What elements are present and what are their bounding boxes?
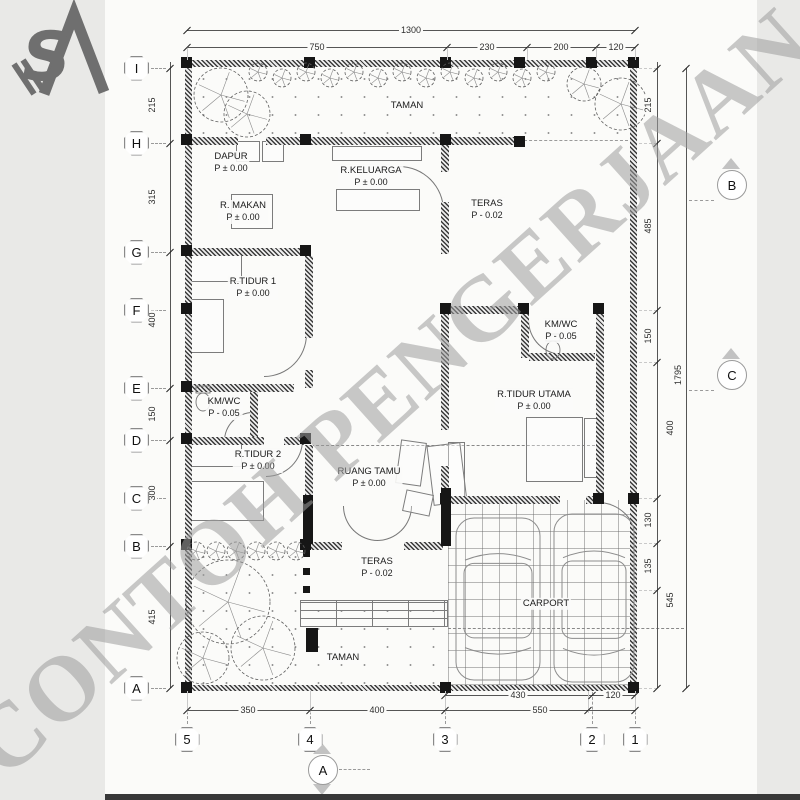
- column-block: [304, 57, 315, 68]
- dim-label: 400: [367, 705, 386, 715]
- door-swing-arc: [343, 506, 378, 541]
- bed: [189, 481, 264, 521]
- column-block: [181, 134, 192, 145]
- wall-segment: [192, 137, 238, 145]
- dashed-line: [151, 252, 166, 253]
- wall-segment: [448, 496, 560, 504]
- dim-label: 230: [477, 42, 496, 52]
- dim-label: 120: [606, 42, 625, 52]
- dashed-line: [151, 440, 166, 441]
- sa-monogram-logo: S: [10, 4, 110, 101]
- grid-bubble-row-F: F: [124, 298, 149, 323]
- section-marker-A: A: [308, 755, 338, 785]
- room-name: R.TIDUR 1: [230, 276, 276, 288]
- bed: [189, 299, 224, 353]
- room-name: KM/WC: [208, 396, 241, 408]
- dim-label: 150: [147, 404, 157, 423]
- dashed-line: [339, 769, 370, 770]
- room-level: P ± 0.00: [235, 461, 281, 473]
- column-block: [628, 57, 639, 68]
- column-block: [628, 493, 639, 504]
- dim-label: 150: [643, 326, 653, 345]
- room-level: P - 0.05: [208, 408, 241, 420]
- room-level: P ± 0.00: [338, 478, 401, 490]
- room-level: P - 0.02: [361, 568, 393, 580]
- sofa-table: [336, 189, 420, 211]
- wall-segment: [192, 437, 264, 445]
- room-label-km-wc: KM/WCP - 0.05: [206, 396, 243, 420]
- dashed-line: [151, 688, 166, 689]
- wall-segment: [448, 137, 522, 145]
- dim-label: 130: [643, 510, 653, 529]
- dim-label: 750: [307, 42, 326, 52]
- room-label-r-tidur-1: R.TIDUR 1P ± 0.00: [228, 276, 278, 300]
- column-block: [181, 245, 192, 256]
- dim-label: 315: [147, 187, 157, 206]
- wall-segment: [305, 370, 313, 388]
- room-label-r-keluarga: R.KELUARGAP ± 0.00: [338, 165, 403, 189]
- grid-bubble-col-4: 4: [298, 727, 323, 752]
- dashed-line: [448, 628, 684, 629]
- column-block: [514, 57, 525, 68]
- dim-label: 215: [643, 95, 653, 114]
- dashed-line: [151, 143, 166, 144]
- grid-bubble-row-I: I: [124, 56, 149, 81]
- ext-line: [187, 47, 188, 60]
- room-name: DAPUR: [214, 151, 247, 163]
- column-block: [303, 568, 310, 575]
- room-name: CARPORT: [523, 598, 569, 610]
- room-name: KM/WC: [545, 319, 578, 331]
- column-block: [518, 303, 529, 314]
- column-block: [181, 381, 192, 392]
- room-level: P ± 0.00: [340, 177, 401, 189]
- section-marker-B: B: [717, 170, 747, 200]
- dim-label: 1300: [399, 25, 423, 35]
- dashed-line: [151, 546, 166, 547]
- dashed-line: [592, 692, 593, 724]
- wall-segment: [441, 202, 449, 254]
- dashed-line: [151, 68, 166, 69]
- wall-segment: [185, 685, 637, 691]
- room-level: P ± 0.00: [214, 163, 247, 175]
- grid-bubble-col-1: 1: [623, 727, 648, 752]
- wall-segment: [192, 384, 294, 392]
- ext-line: [527, 47, 528, 60]
- cabinet: [332, 146, 422, 161]
- section-marker-C: C: [717, 360, 747, 390]
- room-name: TAMAN: [327, 652, 360, 664]
- wall-segment: [441, 314, 449, 430]
- wall-segment: [305, 445, 313, 495]
- room-name: TERAS: [361, 556, 393, 568]
- dashed-line: [689, 200, 714, 201]
- room-label-ruang-tamu: RUANG TAMUP ± 0.00: [336, 466, 403, 490]
- column-block: [306, 628, 318, 652]
- dim-label: 200: [551, 42, 570, 52]
- room-label-r-tidur-utama: R.TIDUR UTAMAP ± 0.00: [495, 389, 573, 413]
- dim-label: 545: [665, 590, 675, 609]
- ext-line: [635, 47, 636, 60]
- room-label-taman: TAMAN: [325, 652, 362, 664]
- room-name: R. MAKAN: [220, 200, 266, 212]
- room-label-teras: TERASP - 0.02: [359, 556, 395, 580]
- column-block: [440, 493, 451, 504]
- wall-segment: [596, 314, 604, 500]
- ext-line: [447, 47, 448, 60]
- column-block: [303, 586, 310, 593]
- column-block: [300, 245, 311, 256]
- room-label-dapur: DAPURP ± 0.00: [212, 151, 249, 175]
- grid-bubble-row-C: C: [124, 486, 149, 511]
- dim-label: 350: [238, 705, 257, 715]
- grid-bubble-row-G: G: [124, 240, 149, 265]
- column-block: [593, 493, 604, 504]
- room-label-km-wc: KM/WCP - 0.05: [543, 319, 580, 343]
- section-arrow-icon: [722, 348, 740, 359]
- room-label-carport: CARPORT: [521, 598, 571, 610]
- wall-segment: [630, 60, 637, 691]
- wall-segment: [521, 314, 529, 358]
- door-swing-arc: [264, 334, 307, 377]
- grid-bubble-row-H: H: [124, 131, 149, 156]
- room-name: TERAS: [471, 198, 503, 210]
- grid-bubble-col-3: 3: [433, 727, 458, 752]
- ext-line: [596, 47, 597, 60]
- column-block: [514, 136, 525, 147]
- dashed-line: [524, 140, 628, 141]
- grid-bubble-row-B: B: [124, 534, 149, 559]
- column-block: [181, 539, 192, 550]
- dim-line: [657, 62, 658, 688]
- column-block: [300, 134, 311, 145]
- dim-label: 1795: [673, 363, 683, 387]
- column-block: [593, 303, 604, 314]
- dashed-line: [151, 388, 166, 389]
- room-level: P ± 0.00: [230, 288, 276, 300]
- room-label-r-makan: R. MAKANP ± 0.00: [218, 200, 268, 224]
- grid-bubble-col-2: 2: [580, 727, 605, 752]
- wall-segment: [185, 60, 637, 67]
- column-block: [440, 57, 451, 68]
- column-block: [300, 539, 311, 550]
- wall-segment: [185, 60, 192, 691]
- dim-label: 415: [147, 607, 157, 626]
- wall-segment: [448, 306, 522, 314]
- dim-label: 215: [147, 95, 157, 114]
- grid-bubble-row-A: A: [124, 676, 149, 701]
- dim-label: 485: [643, 216, 653, 235]
- column-block: [300, 433, 311, 444]
- column-block: [440, 134, 451, 145]
- dim-label: 135: [643, 556, 653, 575]
- entry-steps: [300, 600, 448, 627]
- room-level: P - 0.05: [545, 331, 578, 343]
- column-block: [303, 550, 310, 557]
- room-name: RUANG TAMU: [338, 466, 401, 478]
- room-label-taman: TAMAN: [389, 100, 426, 112]
- wall-segment: [305, 256, 313, 338]
- grid-bubble-col-5: 5: [175, 727, 200, 752]
- column-block: [181, 433, 192, 444]
- wall-segment: [250, 392, 258, 439]
- room-level: P ± 0.00: [220, 212, 266, 224]
- wall-segment: [441, 145, 449, 172]
- dim-label: 120: [603, 690, 622, 700]
- wall-segment: [308, 542, 342, 550]
- dashed-line: [689, 390, 714, 391]
- wall-segment: [266, 137, 448, 145]
- plan-drawing: 1300750230200120430120350400550215315400…: [0, 0, 800, 800]
- room-level: P - 0.02: [471, 210, 503, 222]
- room-name: R.TIDUR UTAMA: [497, 389, 571, 401]
- dim-label: 550: [530, 705, 549, 715]
- bottom-bar: [105, 794, 800, 800]
- column-block: [440, 303, 451, 314]
- dim-line: [686, 68, 687, 688]
- floor-plan-sheet: 1300750230200120430120350400550215315400…: [0, 0, 800, 800]
- dim-label: 400: [665, 418, 675, 437]
- grid-bubble-row-E: E: [124, 376, 149, 401]
- wall-segment: [529, 353, 595, 361]
- dim-line: [170, 62, 171, 688]
- section-arrow-icon: [722, 158, 740, 169]
- bed: [526, 417, 583, 482]
- room-level: P ± 0.00: [497, 401, 571, 413]
- room-name: R.KELUARGA: [340, 165, 401, 177]
- room-name: R.TIDUR 2: [235, 449, 281, 461]
- grid-bubble-row-D: D: [124, 428, 149, 453]
- wall-segment: [404, 542, 443, 550]
- room-name: TAMAN: [391, 100, 424, 112]
- wall-segment: [192, 248, 306, 256]
- dim-label: 430: [508, 690, 527, 700]
- column-block: [303, 495, 313, 544]
- room-label-r-tidur-2: R.TIDUR 2P ± 0.00: [233, 449, 283, 473]
- room-label-teras: TERASP - 0.02: [469, 198, 505, 222]
- column-block: [181, 303, 192, 314]
